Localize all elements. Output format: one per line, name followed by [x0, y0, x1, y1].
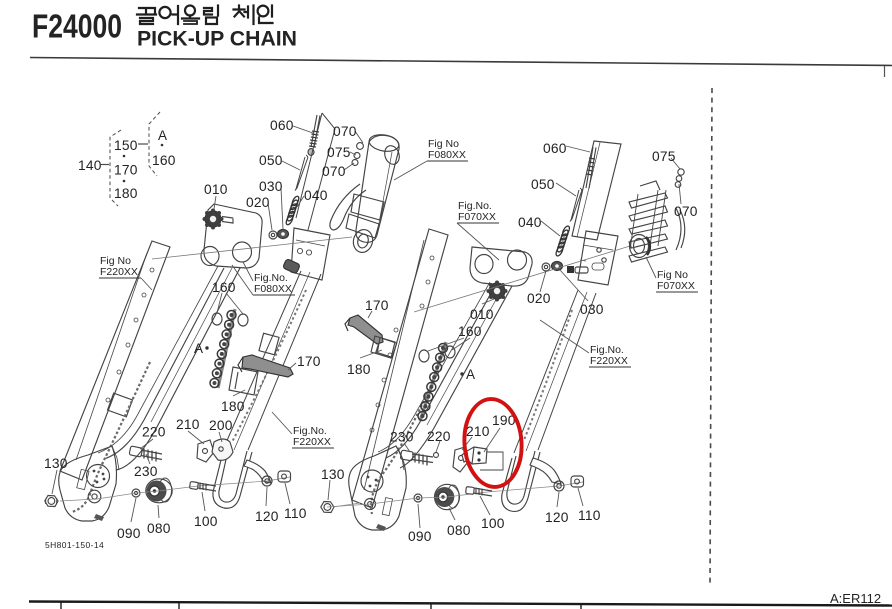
svg-text:050: 050 — [259, 153, 283, 168]
svg-text:180: 180 — [221, 399, 245, 414]
svg-text:170: 170 — [297, 354, 321, 369]
svg-text:160: 160 — [212, 280, 236, 295]
svg-text:A: A — [158, 128, 167, 143]
svg-text:F220XX: F220XX — [590, 355, 628, 367]
svg-text:110: 110 — [284, 506, 307, 521]
svg-text:130: 130 — [321, 467, 345, 482]
svg-text:F080XX: F080XX — [254, 283, 292, 295]
svg-text:5H801-150-14: 5H801-150-14 — [45, 540, 104, 550]
svg-text:020: 020 — [527, 291, 551, 306]
svg-text:F080XX: F080XX — [428, 149, 466, 161]
svg-text:075: 075 — [327, 145, 351, 160]
svg-text:070: 070 — [333, 124, 357, 139]
svg-text:180: 180 — [114, 186, 138, 201]
svg-text:A: A — [466, 367, 475, 382]
svg-text:220: 220 — [427, 429, 451, 444]
svg-text:075: 075 — [652, 149, 676, 164]
svg-text:090: 090 — [117, 526, 141, 541]
svg-text:160: 160 — [458, 324, 482, 339]
svg-text:050: 050 — [531, 177, 555, 192]
svg-text:230: 230 — [390, 430, 414, 445]
svg-text:100: 100 — [481, 516, 505, 531]
svg-text:110: 110 — [578, 508, 601, 523]
svg-text:130: 130 — [44, 456, 68, 471]
svg-text:080: 080 — [447, 523, 471, 538]
svg-text:170: 170 — [114, 163, 138, 178]
svg-text:140: 140 — [78, 158, 102, 173]
svg-text:F220XX: F220XX — [100, 266, 138, 278]
svg-text:200: 200 — [209, 418, 233, 433]
svg-text:F220XX: F220XX — [293, 436, 331, 448]
svg-text:020: 020 — [246, 195, 270, 210]
svg-text:060: 060 — [270, 118, 294, 133]
svg-text:F070XX: F070XX — [657, 280, 695, 292]
svg-text:010: 010 — [204, 182, 228, 197]
svg-text:120: 120 — [545, 510, 569, 525]
svg-text:040: 040 — [518, 215, 542, 230]
svg-text:F24000: F24000 — [32, 8, 122, 45]
svg-text:010: 010 — [470, 307, 494, 322]
svg-text:210: 210 — [176, 417, 200, 432]
svg-text:040: 040 — [304, 188, 328, 203]
svg-text:A: A — [194, 341, 203, 356]
svg-text:F070XX: F070XX — [458, 211, 496, 223]
svg-text:180: 180 — [347, 362, 371, 377]
svg-text:030: 030 — [580, 302, 604, 317]
svg-text:230: 230 — [134, 464, 158, 479]
svg-text:160: 160 — [152, 153, 176, 168]
svg-text:120: 120 — [255, 509, 279, 524]
svg-text:220: 220 — [142, 425, 166, 440]
svg-text:A:ER112: A:ER112 — [830, 591, 881, 606]
svg-text:060: 060 — [543, 141, 567, 156]
svg-text:100: 100 — [194, 514, 218, 529]
svg-text:PICK-UP CHAIN: PICK-UP CHAIN — [137, 28, 297, 51]
svg-text:150: 150 — [114, 138, 138, 153]
svg-text:090: 090 — [408, 529, 432, 544]
svg-text:070: 070 — [674, 204, 698, 219]
svg-text:080: 080 — [147, 521, 171, 536]
svg-text:070: 070 — [322, 164, 346, 179]
svg-text:170: 170 — [365, 298, 389, 313]
svg-text:210: 210 — [466, 424, 490, 439]
svg-text:030: 030 — [259, 179, 283, 194]
